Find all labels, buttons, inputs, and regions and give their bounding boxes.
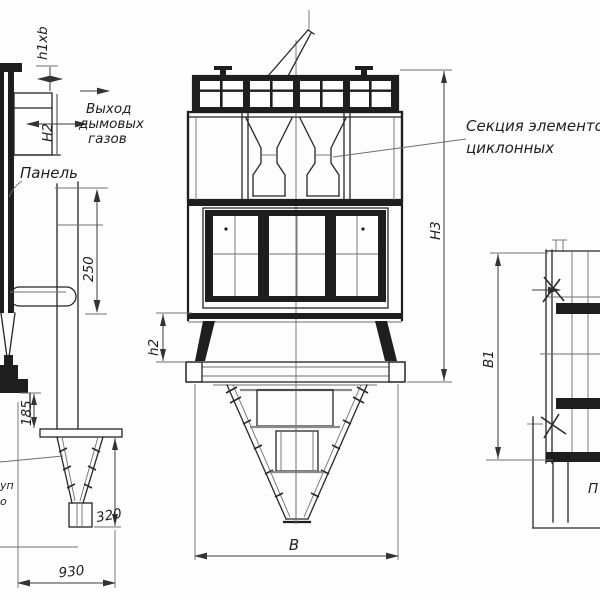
dim-label-H3: Н3: [428, 221, 444, 240]
lifting-lug: [355, 66, 373, 76]
left-edge-fragment-bottom: о: [0, 495, 7, 508]
dim-label-930: 930: [58, 563, 85, 582]
dim-h2: h2: [146, 313, 192, 362]
dim-label-B1: В1: [481, 350, 497, 368]
hopper: [213, 385, 377, 524]
dim-h1xb: h1xb: [35, 26, 62, 91]
dim-H2: Н2: [27, 94, 87, 154]
dim-label-H2: Н2: [40, 123, 56, 142]
dim-label-h2: h2: [146, 339, 162, 356]
top-frame: [193, 76, 398, 112]
open-hatch-icon: [268, 10, 314, 76]
dim-250: 250: [81, 190, 107, 314]
gas-outlet-label-2: дымовых: [78, 116, 145, 132]
leader-line: [0, 456, 63, 462]
right-edge-fragment: П: [588, 481, 598, 497]
cyclone-section-label-1: Секция элементов: [466, 117, 600, 135]
cyclone-element: [300, 118, 346, 196]
gas-outlet-callout: Выход дымовых газов: [78, 91, 145, 147]
leader-line: [333, 139, 466, 157]
cyclone-assembly-drawing: уп о h1xb Н2 Выход дымовых газов Панель …: [0, 0, 600, 600]
cyclone-element: [246, 118, 292, 196]
dim-930: 930: [18, 402, 115, 588]
right-side-view: П: [527, 240, 600, 528]
gas-outlet-label-1: Выход: [86, 101, 132, 117]
dim-B1: В1: [481, 253, 553, 460]
dim-label-B: В: [289, 536, 299, 554]
cyclone-section-callout: Секция элементов циклонных: [333, 117, 600, 157]
cyclone-elements-section: [188, 112, 402, 200]
dim-label-250: 250: [81, 256, 97, 282]
dim-label-185: 185: [19, 400, 35, 426]
panel-label: Панель: [20, 164, 78, 182]
left-edge-fragment-top: уп: [0, 479, 14, 492]
dim-label-320: 320: [95, 506, 123, 526]
side-pipe: [10, 287, 76, 306]
gas-outlet-label-3: газов: [88, 131, 127, 147]
inlet-arrow-icon: [532, 277, 564, 302]
cyclone-section-label-2: циклонных: [466, 139, 554, 157]
dim-label-h1xb: h1xb: [35, 26, 51, 60]
dust-box: [69, 503, 92, 527]
support-belt: [186, 313, 405, 382]
panel-callout: Панель: [9, 164, 78, 197]
drawing-canvas: уп о h1xb Н2 Выход дымовых газов Панель …: [0, 0, 600, 600]
panel-wall: [188, 200, 402, 308]
front-view: [186, 10, 405, 524]
dim-H3: Н3: [400, 70, 452, 382]
lifting-lug: [214, 66, 232, 76]
